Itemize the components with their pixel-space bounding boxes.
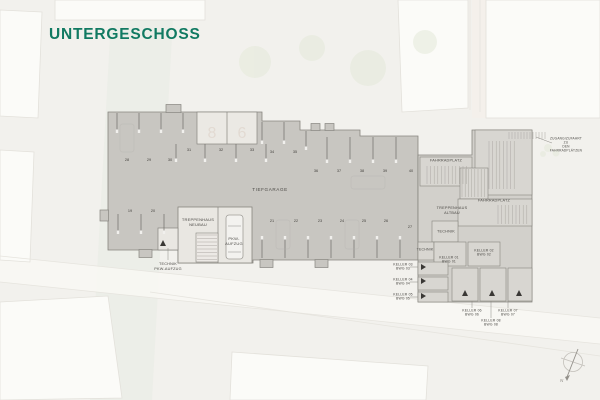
keller-room-bottom-3: [508, 268, 532, 301]
stairs-altbau: [460, 168, 488, 199]
svg-text:8: 8: [208, 125, 217, 142]
svg-text:6: 6: [238, 125, 247, 142]
garage-outline: [108, 112, 418, 263]
page-title: UNTERGESCHOSS: [49, 26, 201, 44]
keller-room-bottom-2: [480, 268, 506, 301]
floor-plan-drawing: 8 6: [0, 0, 600, 400]
car-lift-car-icon: [226, 215, 243, 259]
technik-pkw-aufzug-room: [158, 228, 178, 250]
light-shaft-rooms: 8 6: [197, 112, 257, 144]
stairs-neubau: [196, 233, 218, 262]
keller-room-02: [468, 242, 500, 266]
technik-room-2: [418, 242, 434, 260]
fahrrad-room-lower: [458, 199, 532, 226]
site-plan-canvas: 8 6: [0, 0, 600, 400]
technik-room-1: [432, 221, 458, 242]
compass-north-label: N: [560, 378, 563, 383]
compass-rose: [561, 349, 585, 381]
keller-room-bottom-1: [452, 268, 478, 301]
